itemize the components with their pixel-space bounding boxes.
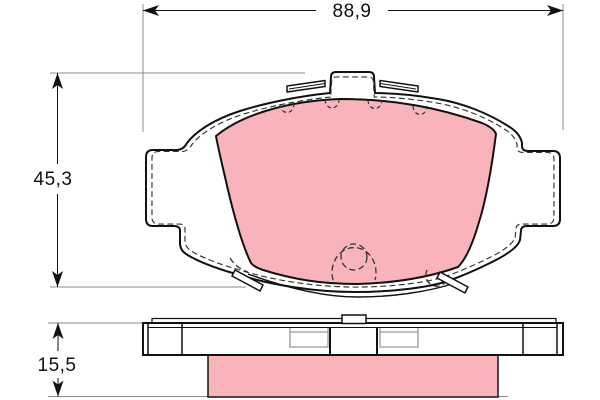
friction-material-side	[208, 355, 498, 397]
friction-material-front	[216, 99, 496, 284]
dimension-width: 88,9	[143, 1, 563, 22]
width-dim-label: 88,9	[333, 1, 372, 22]
dimension-height: 45,3	[34, 73, 73, 287]
front-view	[146, 72, 560, 297]
thickness-dim-label: 15,5	[38, 355, 77, 376]
height-dim-label: 45,3	[34, 169, 73, 190]
side-view	[143, 315, 563, 397]
dimension-thickness: 15,5	[38, 323, 77, 397]
drawing-canvas: 88,9 45,3 15,5	[0, 0, 600, 400]
center-lug-tab	[342, 315, 366, 324]
brake-pad-technical-drawing: 88,9 45,3 15,5	[0, 0, 600, 400]
